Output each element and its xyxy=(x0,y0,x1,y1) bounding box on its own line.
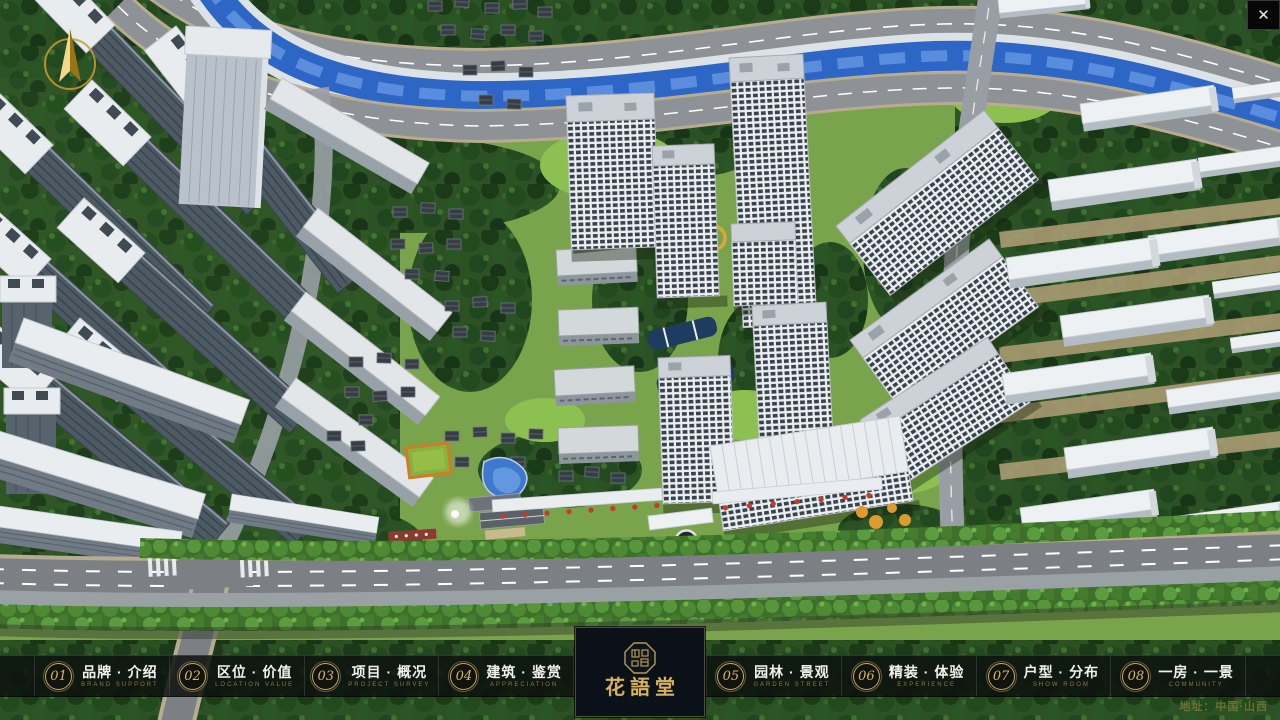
item-number-badge: 03 xyxy=(312,663,339,690)
nav-item-project-overview[interactable]: 03 项目 · 概况 PROJECT SURVEY xyxy=(304,656,439,696)
project-address: 地址：中国·山西 xyxy=(1179,698,1268,714)
nav-item-architecture[interactable]: 04 建筑 · 鉴赏 APPRECIATION xyxy=(438,656,573,696)
nav-item-floorplans[interactable]: 07 户型 · 分布 SHOW ROOM xyxy=(976,656,1111,696)
nav-item-landscape[interactable]: 05 园林 · 景观 GARDEN STREET xyxy=(706,656,841,696)
close-button[interactable]: ✕ xyxy=(1247,0,1280,30)
nav-label-zh: 区位 · 价值 xyxy=(217,665,292,679)
item-number-badge: 06 xyxy=(853,663,880,690)
aerial-masterplan-render xyxy=(0,0,1280,720)
nav-item-brand-intro[interactable]: 01 品牌 · 介绍 BRAND SUPPORT xyxy=(34,656,169,696)
item-number-badge: 02 xyxy=(179,663,206,690)
project-logo-caption: · · · · · · · · xyxy=(616,699,664,704)
nav-item-location-value[interactable]: 02 区位 · 价值 LOCATION VALUE xyxy=(169,656,304,696)
nav-label-en: APPRECIATION xyxy=(490,682,558,688)
item-number-badge: 05 xyxy=(717,663,744,690)
item-number-badge: 04 xyxy=(450,663,477,690)
nav-label-zh: 一房 · 一景 xyxy=(1158,665,1233,679)
item-number-badge: 08 xyxy=(1122,663,1149,690)
nav-item-interior[interactable]: 06 精装 · 体验 EXPERIENCE xyxy=(841,656,976,696)
item-number-badge: 01 xyxy=(45,663,72,690)
project-logo-panel[interactable]: 花語堂 · · · · · · · · xyxy=(575,627,705,717)
nav-label-en: BRAND SUPPORT xyxy=(81,682,159,688)
nav-item-room-views[interactable]: 08 一房 · 一景 COMMUNITY xyxy=(1110,656,1246,696)
item-number-badge: 07 xyxy=(988,663,1015,690)
nav-label-en: EXPERIENCE xyxy=(897,682,956,688)
nav-label-zh: 项目 · 概况 xyxy=(352,665,427,679)
close-icon: ✕ xyxy=(1257,6,1270,24)
north-compass-icon xyxy=(34,22,106,98)
nav-label-en: SHOW ROOM xyxy=(1033,682,1090,688)
nav-label-zh: 建筑 · 鉴赏 xyxy=(486,665,561,679)
nav-label-en: PROJECT SURVEY xyxy=(348,682,430,688)
nav-label-en: COMMUNITY xyxy=(1169,682,1224,688)
seal-icon xyxy=(623,641,657,675)
nav-label-zh: 品牌 · 介绍 xyxy=(82,665,157,679)
nav-label-zh: 园林 · 景观 xyxy=(754,665,829,679)
nav-label-zh: 户型 · 分布 xyxy=(1024,665,1099,679)
green-roof-building xyxy=(406,443,451,478)
nav-label-en: LOCATION VALUE xyxy=(215,682,294,688)
presentation-screen: ✕ 01 品牌 · 介绍 BRAND SUPPORT 02 区位 · 价值 LO… xyxy=(0,0,1280,720)
project-logo-title: 花語堂 xyxy=(600,677,680,697)
nav-label-en: GARDEN STREET xyxy=(753,682,830,688)
nav-label-zh: 精装 · 体验 xyxy=(889,665,964,679)
